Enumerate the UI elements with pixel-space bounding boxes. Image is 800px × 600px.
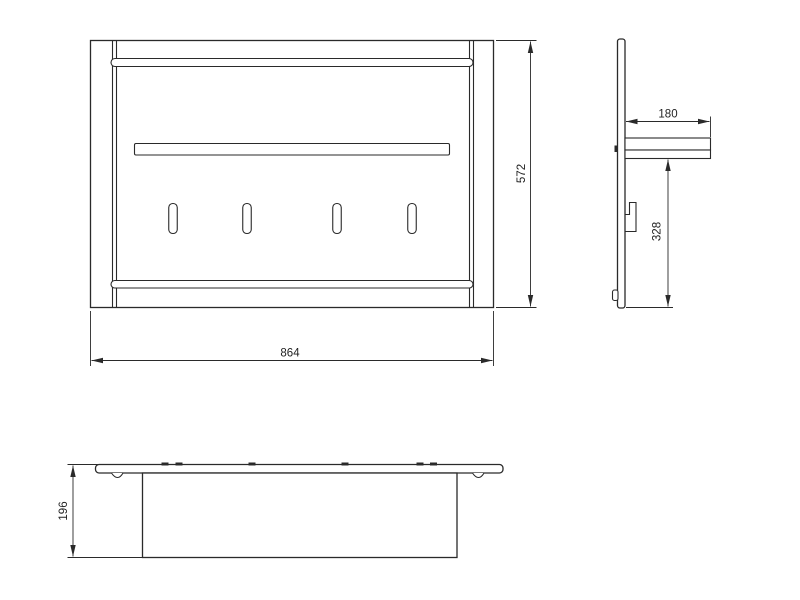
side-shelf-rail xyxy=(625,150,711,159)
top-slot-mark-3 xyxy=(249,463,256,466)
front-outer-frame xyxy=(91,41,494,308)
front-hook-slot-1 xyxy=(169,204,178,234)
drawing-canvas: 572 864 xyxy=(0,0,800,600)
side-height-label: 328 xyxy=(652,222,664,241)
top-depth-label: 196 xyxy=(58,501,70,520)
side-height-dimension: 328 xyxy=(626,160,673,308)
side-lower-mount-tab xyxy=(613,290,619,301)
front-height-dimension: 572 xyxy=(496,41,537,308)
front-height-label: 572 xyxy=(516,164,528,183)
top-slot-mark-1 xyxy=(162,463,169,466)
side-depth-label: 180 xyxy=(658,109,677,121)
side-shelf-board xyxy=(625,138,711,150)
top-depth-dimension: 196 xyxy=(58,465,143,558)
front-hook-slot-3 xyxy=(333,204,342,234)
side-view: 180 328 xyxy=(613,39,711,308)
top-right-notch xyxy=(473,473,485,478)
side-hook-profile xyxy=(625,203,636,232)
top-back-panel xyxy=(96,465,504,474)
top-slot-mark-6 xyxy=(430,463,437,466)
front-bottom-crossbar xyxy=(111,281,473,289)
side-upper-mount-tab xyxy=(615,146,619,153)
front-hook-slot-2 xyxy=(243,204,252,234)
front-top-crossbar xyxy=(111,59,473,67)
top-slot-mark-5 xyxy=(417,463,424,466)
front-width-dimension: 864 xyxy=(91,311,494,366)
top-shelf-outline xyxy=(143,473,458,558)
front-hook-slot-4 xyxy=(408,204,417,234)
front-view: 572 864 xyxy=(91,41,537,367)
side-back-panel xyxy=(618,39,626,308)
top-slot-mark-2 xyxy=(176,463,183,466)
top-slot-mark-4 xyxy=(342,463,349,466)
drawing-sheet: 572 864 xyxy=(0,0,800,600)
front-shelf-edge xyxy=(135,144,450,156)
front-width-label: 864 xyxy=(280,348,300,360)
side-depth-dimension: 180 xyxy=(626,109,711,138)
top-view: 196 xyxy=(58,463,503,558)
top-left-notch xyxy=(112,473,124,478)
